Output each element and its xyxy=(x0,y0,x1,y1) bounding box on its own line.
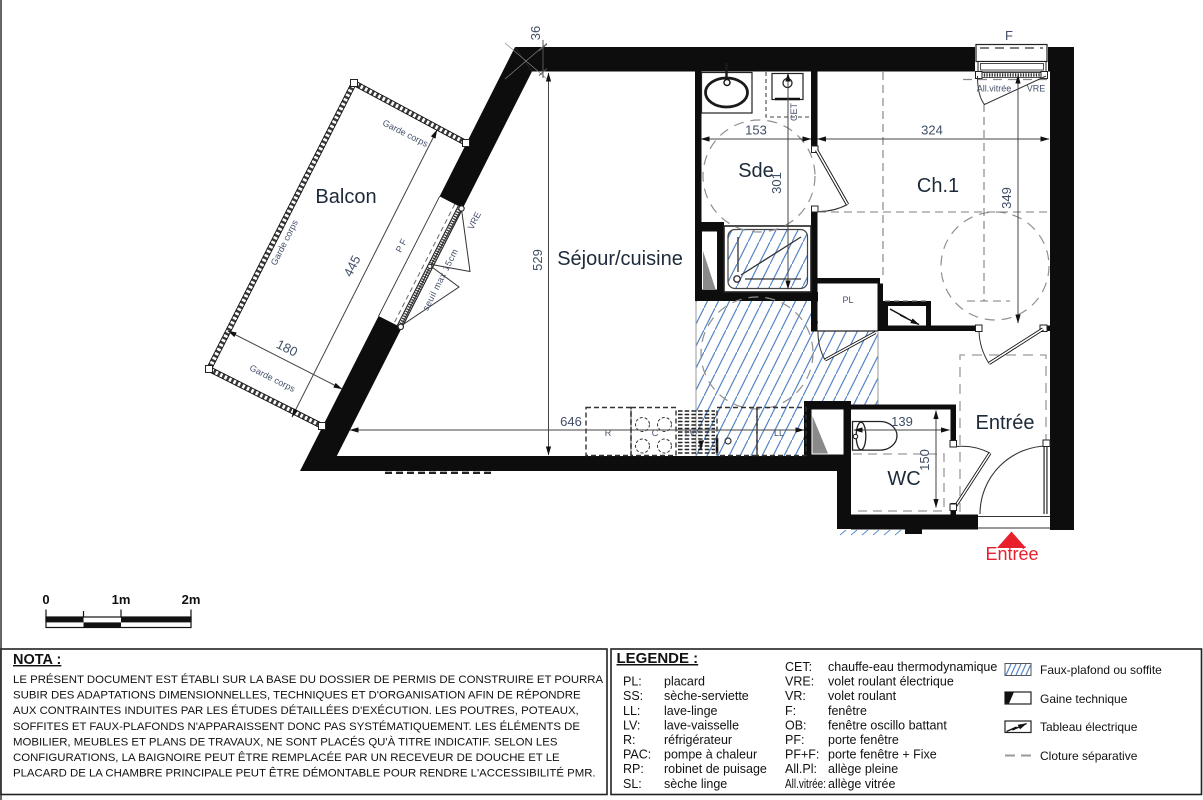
svg-text:réfrigérateur: réfrigérateur xyxy=(664,733,732,747)
svg-text:646: 646 xyxy=(560,414,582,429)
svg-text:F: F xyxy=(1005,28,1013,43)
svg-text:Entrée: Entrée xyxy=(985,544,1038,564)
svg-text:placard: placard xyxy=(664,675,705,689)
svg-text:allège vitrée: allège vitrée xyxy=(828,777,895,791)
svg-text:Entrée: Entrée xyxy=(976,412,1035,434)
svg-text:153: 153 xyxy=(745,123,767,138)
svg-text:SS:: SS: xyxy=(623,689,643,703)
svg-text:P F: P F xyxy=(394,237,409,254)
svg-text:Sde: Sde xyxy=(738,160,774,182)
svg-text:Séjour/cuisine: Séjour/cuisine xyxy=(557,248,683,270)
svg-text:36: 36 xyxy=(528,26,543,40)
svg-text:All.vitrée:: All.vitrée: xyxy=(785,777,826,791)
svg-text:VRE: VRE xyxy=(1027,84,1046,94)
svg-text:0: 0 xyxy=(42,592,49,607)
svg-text:OB:: OB: xyxy=(785,718,807,732)
svg-text:Cloture séparative: Cloture séparative xyxy=(1040,749,1138,763)
svg-text:SOFFITES ET FAUX-PLAFONDS N'AP: SOFFITES ET FAUX-PLAFONDS N'APPARAISSENT… xyxy=(13,720,580,733)
svg-text:chauffe-eau thermodynamique: chauffe-eau thermodynamique xyxy=(828,660,997,674)
svg-text:PAC:: PAC: xyxy=(623,748,651,762)
svg-text:LE PRÉSENT DOCUMENT EST ÉTABLI: LE PRÉSENT DOCUMENT EST ÉTABLI SUR LA BA… xyxy=(13,673,604,686)
svg-text:PL: PL xyxy=(842,295,853,305)
svg-text:LV:: LV: xyxy=(623,718,640,732)
svg-text:porte fenêtre: porte fenêtre xyxy=(828,733,899,747)
svg-text:lave-linge: lave-linge xyxy=(664,704,718,718)
svg-text:Faux-plafond ou soffite: Faux-plafond ou soffite xyxy=(1040,663,1162,677)
svg-text:PLACARD DE LA CHAMBRE PRINCIPA: PLACARD DE LA CHAMBRE PRINCIPALE PEUT ÊT… xyxy=(13,767,596,780)
svg-text:AUX CONTRAINTES INDUITES PAR L: AUX CONTRAINTES INDUITES PAR LES ÉTUDES … xyxy=(13,704,579,717)
svg-text:volet roulant électrique: volet roulant électrique xyxy=(828,675,954,689)
svg-text:324: 324 xyxy=(921,123,943,138)
svg-text:Gaine technique: Gaine technique xyxy=(1040,692,1128,706)
svg-text:allège pleine: allège pleine xyxy=(828,762,898,776)
svg-text:445: 445 xyxy=(340,253,363,279)
svg-text:MOBILIER, MEUBLES ET PLANS DE: MOBILIER, MEUBLES ET PLANS DE TRAVAUX, N… xyxy=(13,735,558,748)
svg-text:VR:: VR: xyxy=(785,689,806,703)
svg-text:PL:: PL: xyxy=(623,675,642,689)
svg-text:VRE: VRE xyxy=(466,210,483,231)
svg-text:CET:: CET: xyxy=(785,660,812,674)
svg-text:sèche linge: sèche linge xyxy=(664,777,727,791)
svg-text:2m: 2m xyxy=(182,592,201,607)
svg-text:fenêtre: fenêtre xyxy=(828,704,867,718)
svg-text:LL:: LL: xyxy=(623,704,640,718)
svg-text:SUBIR DES ADAPTATIONS DIMENSIO: SUBIR DES ADAPTATIONS DIMENSIONNELLES, T… xyxy=(13,689,581,702)
svg-text:CONFIGURATIONS, LA BAIGNOIRE P: CONFIGURATIONS, LA BAIGNOIRE PEUT ÊTRE R… xyxy=(13,751,560,764)
svg-text:sèche-serviette: sèche-serviette xyxy=(664,689,749,703)
svg-text:SL:: SL: xyxy=(623,777,642,791)
svg-text:R: R xyxy=(605,428,612,438)
svg-text:pompe à chaleur: pompe à chaleur xyxy=(664,748,757,762)
svg-text:PF+F:: PF+F: xyxy=(785,748,819,762)
svg-text:porte fenêtre + Fixe: porte fenêtre + Fixe xyxy=(828,748,937,762)
svg-text:fenêtre oscillo battant: fenêtre oscillo battant xyxy=(828,718,947,732)
svg-text:LEGENDE :: LEGENDE : xyxy=(617,650,699,667)
svg-text:WC: WC xyxy=(887,468,920,490)
svg-text:R:: R: xyxy=(623,733,636,747)
svg-text:F:: F: xyxy=(785,704,796,718)
svg-text:CET: CET xyxy=(789,102,799,121)
svg-text:RP:: RP: xyxy=(623,762,644,776)
svg-text:1m: 1m xyxy=(112,592,131,607)
svg-text:NOTA :: NOTA : xyxy=(13,652,61,668)
svg-text:PF:: PF: xyxy=(785,733,804,747)
svg-text:LL: LL xyxy=(774,428,784,438)
svg-text:volet roulant: volet roulant xyxy=(828,689,897,703)
svg-text:529: 529 xyxy=(530,249,545,271)
svg-text:VRE:: VRE: xyxy=(785,675,814,689)
svg-text:Ch.1: Ch.1 xyxy=(917,175,959,197)
svg-text:Tableau électrique: Tableau électrique xyxy=(1040,720,1138,734)
svg-text:lave-vaisselle: lave-vaisselle xyxy=(664,718,739,732)
svg-text:All.vitrée: All.vitrée xyxy=(977,84,1012,94)
svg-text:139: 139 xyxy=(891,414,913,429)
svg-text:349: 349 xyxy=(999,187,1014,209)
svg-text:Balcon: Balcon xyxy=(315,186,376,208)
svg-text:LV: LV xyxy=(685,428,695,438)
svg-text:C: C xyxy=(652,428,659,438)
svg-text:All.Pl:: All.Pl: xyxy=(785,762,817,776)
svg-text:robinet de puisage: robinet de puisage xyxy=(664,762,767,776)
